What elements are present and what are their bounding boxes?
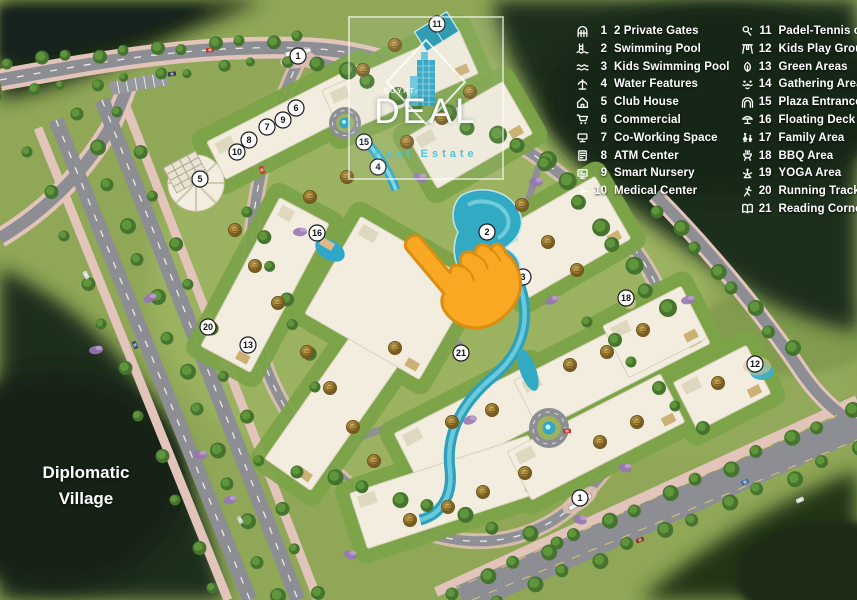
legend-item-17: 17Family Area — [740, 130, 857, 146]
legend-item-label: YOGA Area — [779, 167, 842, 179]
legend-item-21: 21Reading Corner — [740, 201, 857, 217]
legend-item-number: 8 — [590, 150, 607, 162]
legend-item-number: 15 — [755, 96, 772, 108]
medical-center-icon — [575, 185, 590, 198]
map-marker-number: 13 — [243, 340, 253, 350]
running-track-icon — [740, 185, 755, 198]
legend-item-8: 8ATM Center — [575, 148, 730, 164]
yoga-area-icon — [740, 167, 755, 180]
map-marker-1: 1 — [290, 48, 306, 64]
floating-deck-icon — [740, 113, 755, 126]
legend-item-number: 18 — [755, 150, 772, 162]
building-badge — [712, 377, 725, 390]
logo-brand-text: DEAL — [350, 92, 502, 132]
legend-item-label: BBQ Area — [779, 150, 834, 162]
map-marker-2: 2 — [479, 224, 495, 240]
legend-item-19: 19YOGA Area — [740, 165, 857, 181]
map-marker-18: 18 — [618, 290, 634, 306]
legend-item-label: Gathering Area — [779, 78, 857, 90]
map-marker-number: 12 — [750, 359, 760, 369]
legend-column-2: 11Padel-Tennis court12Kids Play Ground13… — [740, 23, 857, 219]
building-badge — [637, 324, 650, 337]
legend-item-label: Running Track — [779, 185, 857, 197]
building-badge — [404, 514, 417, 527]
logo-tagline: Real Estate — [350, 148, 502, 160]
gate-icon — [575, 25, 590, 38]
family-area-icon — [740, 131, 755, 144]
building-badge — [442, 501, 455, 514]
legend-item-number: 20 — [755, 185, 772, 197]
building-badge — [229, 224, 242, 237]
building-badge — [516, 199, 529, 212]
map-marker-number: 1 — [577, 493, 582, 503]
building-badge — [304, 191, 317, 204]
legend-item-number: 7 — [590, 132, 607, 144]
commercial-icon — [575, 113, 590, 126]
map-marker-number: 1 — [295, 51, 300, 61]
map-marker-number: 2 — [484, 227, 489, 237]
water-features-icon — [575, 78, 590, 91]
map-marker-number: 8 — [246, 135, 251, 145]
legend-item-2: 2Swimming Pool — [575, 41, 730, 57]
legend-item-number: 19 — [755, 167, 772, 179]
legend-item-number: 6 — [590, 114, 607, 126]
legend-item-label: Green Areas — [779, 61, 848, 73]
legend-item-label: Reading Corner — [779, 203, 857, 215]
legend-column-1: 12 Private Gates2Swimming Pool3Kids Swim… — [575, 23, 730, 219]
map-marker-13: 13 — [240, 337, 256, 353]
legend-item-4: 4Water Features — [575, 76, 730, 92]
map-marker-6: 6 — [288, 100, 304, 116]
building-badge — [301, 346, 314, 359]
swimming-pool-icon — [575, 42, 590, 55]
legend-item-label: Plaza Entrance — [779, 96, 857, 108]
reading-corner-icon — [740, 202, 755, 215]
building-badge — [446, 416, 459, 429]
gathering-area-icon — [740, 78, 755, 91]
legend-item-6: 6Commercial — [575, 112, 730, 128]
kids-playground-icon — [740, 42, 755, 55]
building-badge — [249, 260, 262, 273]
building-badge — [368, 455, 381, 468]
legend-item-number: 3 — [590, 61, 607, 73]
legend-item-number: 2 — [590, 43, 607, 55]
plaza-entrance-icon — [740, 96, 755, 109]
map-marker-21: 21 — [453, 345, 469, 361]
map-marker-9: 9 — [275, 112, 291, 128]
building-badge — [389, 342, 402, 355]
legend-item-label: Medical Center — [614, 185, 697, 197]
legend-item-14: 14Gathering Area — [740, 76, 857, 92]
map-marker-7: 7 — [259, 119, 275, 135]
padel-tennis-icon — [740, 25, 755, 38]
legend-item-label: ATM Center — [614, 150, 679, 162]
map-marker-8: 8 — [241, 132, 257, 148]
map-marker-16: 16 — [309, 225, 325, 241]
legend-item-number: 10 — [590, 185, 607, 197]
building-badge — [347, 421, 360, 434]
legend-item-label: 2 Private Gates — [614, 25, 699, 37]
legend-item-1: 12 Private Gates — [575, 23, 730, 39]
legend-item-label: Smart Nursery — [614, 167, 695, 179]
legend-item-3: 3Kids Swimming Pool — [575, 59, 730, 75]
map-marker-number: 21 — [456, 348, 466, 358]
legend-item-10: 10Medical Center — [575, 183, 730, 199]
legend-item-number: 11 — [755, 25, 772, 37]
building-badge — [594, 436, 607, 449]
fountain-roundabout-south — [529, 408, 569, 448]
legend-item-label: Kids Play Ground — [779, 43, 857, 55]
map-marker-number: 16 — [312, 228, 322, 238]
legend-item-number: 5 — [590, 96, 607, 108]
legend-item-7: 7Co-Working Space — [575, 130, 730, 146]
legend-item-number: 21 — [755, 203, 772, 215]
building-badge — [486, 404, 499, 417]
legend-item-label: Swimming Pool — [614, 43, 701, 55]
legend-item-label: Padel-Tennis court — [779, 25, 857, 37]
building-badge — [601, 346, 614, 359]
building-badge — [631, 416, 644, 429]
map-marker-12: 12 — [747, 356, 763, 372]
legend-item-label: Club House — [614, 96, 679, 108]
map-marker-number: 6 — [293, 103, 298, 113]
building-badge — [564, 359, 577, 372]
map-marker-number: 7 — [264, 122, 269, 132]
map-marker-number: 20 — [203, 322, 213, 332]
legend-item-number: 4 — [590, 78, 607, 90]
legend-item-number: 12 — [755, 43, 772, 55]
legend-item-label: Kids Swimming Pool — [614, 61, 730, 73]
legend-item-16: 16Floating Deck — [740, 112, 857, 128]
amenities-legend: 12 Private Gates2Swimming Pool3Kids Swim… — [575, 23, 857, 219]
legend-item-15: 15Plaza Entrance — [740, 94, 857, 110]
building-badge — [324, 382, 337, 395]
green-areas-icon — [740, 60, 755, 73]
club-house-icon — [575, 96, 590, 109]
legend-item-label: Family Area — [779, 132, 845, 144]
building-badge — [542, 236, 555, 249]
map-marker-number: 10 — [232, 147, 242, 157]
legend-item-number: 17 — [755, 132, 772, 144]
legend-item-12: 12Kids Play Ground — [740, 41, 857, 57]
legend-item-5: 5Club House — [575, 94, 730, 110]
legend-item-18: 18BBQ Area — [740, 148, 857, 164]
map-marker-10: 10 — [229, 144, 245, 160]
legend-item-20: 20Running Track — [740, 183, 857, 199]
map-marker-number: 18 — [621, 293, 631, 303]
building-badge — [571, 264, 584, 277]
area-label: Diplomatic Village — [14, 460, 158, 513]
legend-item-13: 13Green Areas — [740, 59, 857, 75]
atm-icon — [575, 149, 590, 162]
building-badge — [519, 467, 532, 480]
map-marker-1: 1 — [572, 490, 588, 506]
legend-item-9: 9Smart Nursery — [575, 165, 730, 181]
legend-item-label: Commercial — [614, 114, 681, 126]
map-marker-5: 5 — [192, 171, 208, 187]
legend-item-label: Water Features — [614, 78, 698, 90]
legend-item-number: 16 — [755, 114, 772, 126]
legend-item-label: Floating Deck — [779, 114, 856, 126]
map-marker-number: 5 — [197, 174, 202, 184]
legend-item-number: 1 — [590, 25, 607, 37]
smart-nursery-icon — [575, 167, 590, 180]
map-marker-number: 9 — [280, 115, 285, 125]
brand-logo: EGYPT- DEAL Real Estate — [348, 16, 504, 180]
map-marker-20: 20 — [200, 319, 216, 335]
legend-item-11: 11Padel-Tennis court — [740, 23, 857, 39]
legend-item-label: Co-Working Space — [614, 132, 718, 144]
bbq-area-icon — [740, 149, 755, 162]
legend-item-number: 14 — [755, 78, 772, 90]
legend-item-number: 13 — [755, 61, 772, 73]
car — [563, 429, 571, 433]
building-badge — [272, 297, 285, 310]
master-plan-screenshot: 1116978105154231618122013211 12 Private … — [0, 0, 857, 600]
co-working-space-icon — [575, 131, 590, 144]
kids-swimming-pool-icon — [575, 60, 590, 73]
building-badge — [477, 486, 490, 499]
legend-item-number: 9 — [590, 167, 607, 179]
